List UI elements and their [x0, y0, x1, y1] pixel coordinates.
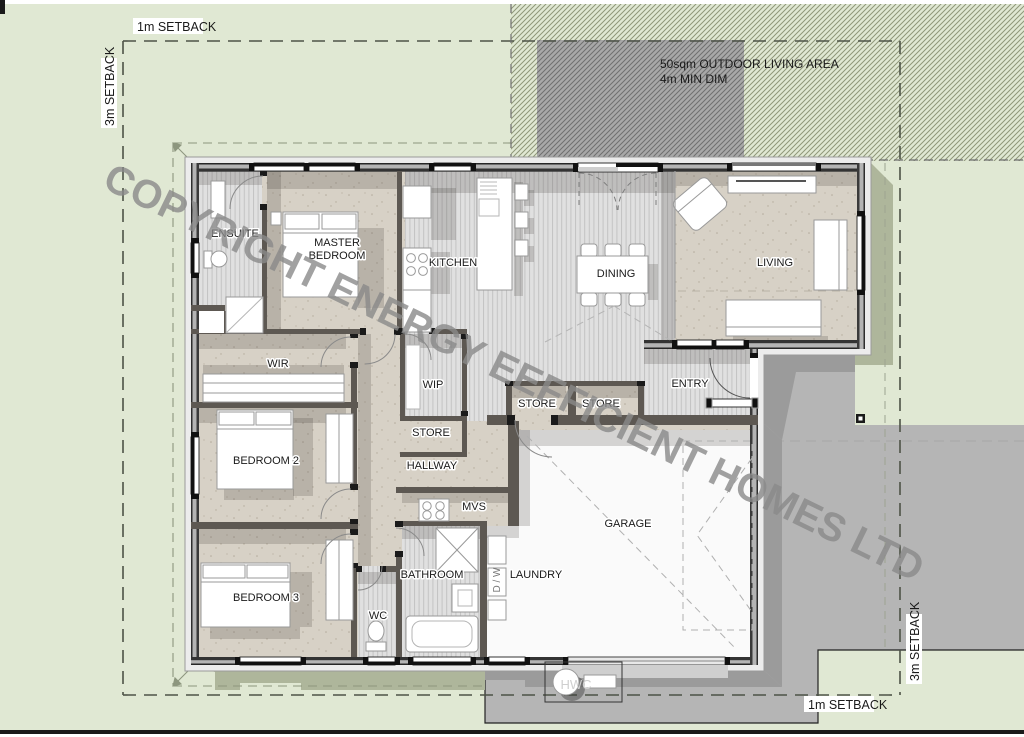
svg-text:WC: WC: [369, 610, 387, 622]
svg-text:BATHROOM: BATHROOM: [401, 569, 464, 581]
svg-text:LAUNDRY: LAUNDRY: [510, 569, 563, 581]
svg-text:D / W: D / W: [492, 567, 503, 593]
svg-text:HALLWAY: HALLWAY: [407, 460, 458, 472]
svg-text:50sqm OUTDOOR LIVING AREA: 50sqm OUTDOOR LIVING AREA: [660, 57, 839, 71]
svg-text:GARAGE: GARAGE: [604, 518, 651, 530]
svg-text:WIR: WIR: [267, 358, 288, 370]
svg-text:BEDROOM 2: BEDROOM 2: [233, 455, 299, 467]
svg-text:ENTRY: ENTRY: [671, 378, 709, 390]
svg-text:MVS: MVS: [462, 501, 486, 513]
svg-text:STORE: STORE: [412, 427, 450, 439]
svg-text:LIVING: LIVING: [757, 257, 793, 269]
svg-text:4m MIN DIM: 4m MIN DIM: [660, 72, 727, 86]
svg-text:1m SETBACK: 1m SETBACK: [137, 20, 217, 34]
svg-text:3m SETBACK: 3m SETBACK: [103, 46, 117, 126]
svg-text:MASTER: MASTER: [314, 237, 360, 249]
svg-text:HWC: HWC: [560, 677, 591, 692]
svg-text:3m SETBACK: 3m SETBACK: [908, 601, 922, 681]
svg-text:WIP: WIP: [423, 379, 444, 391]
svg-text:BEDROOM 3: BEDROOM 3: [233, 592, 299, 604]
svg-text:1m SETBACK: 1m SETBACK: [808, 698, 888, 712]
svg-text:DINING: DINING: [597, 268, 636, 280]
svg-text:KITCHEN: KITCHEN: [429, 257, 477, 269]
